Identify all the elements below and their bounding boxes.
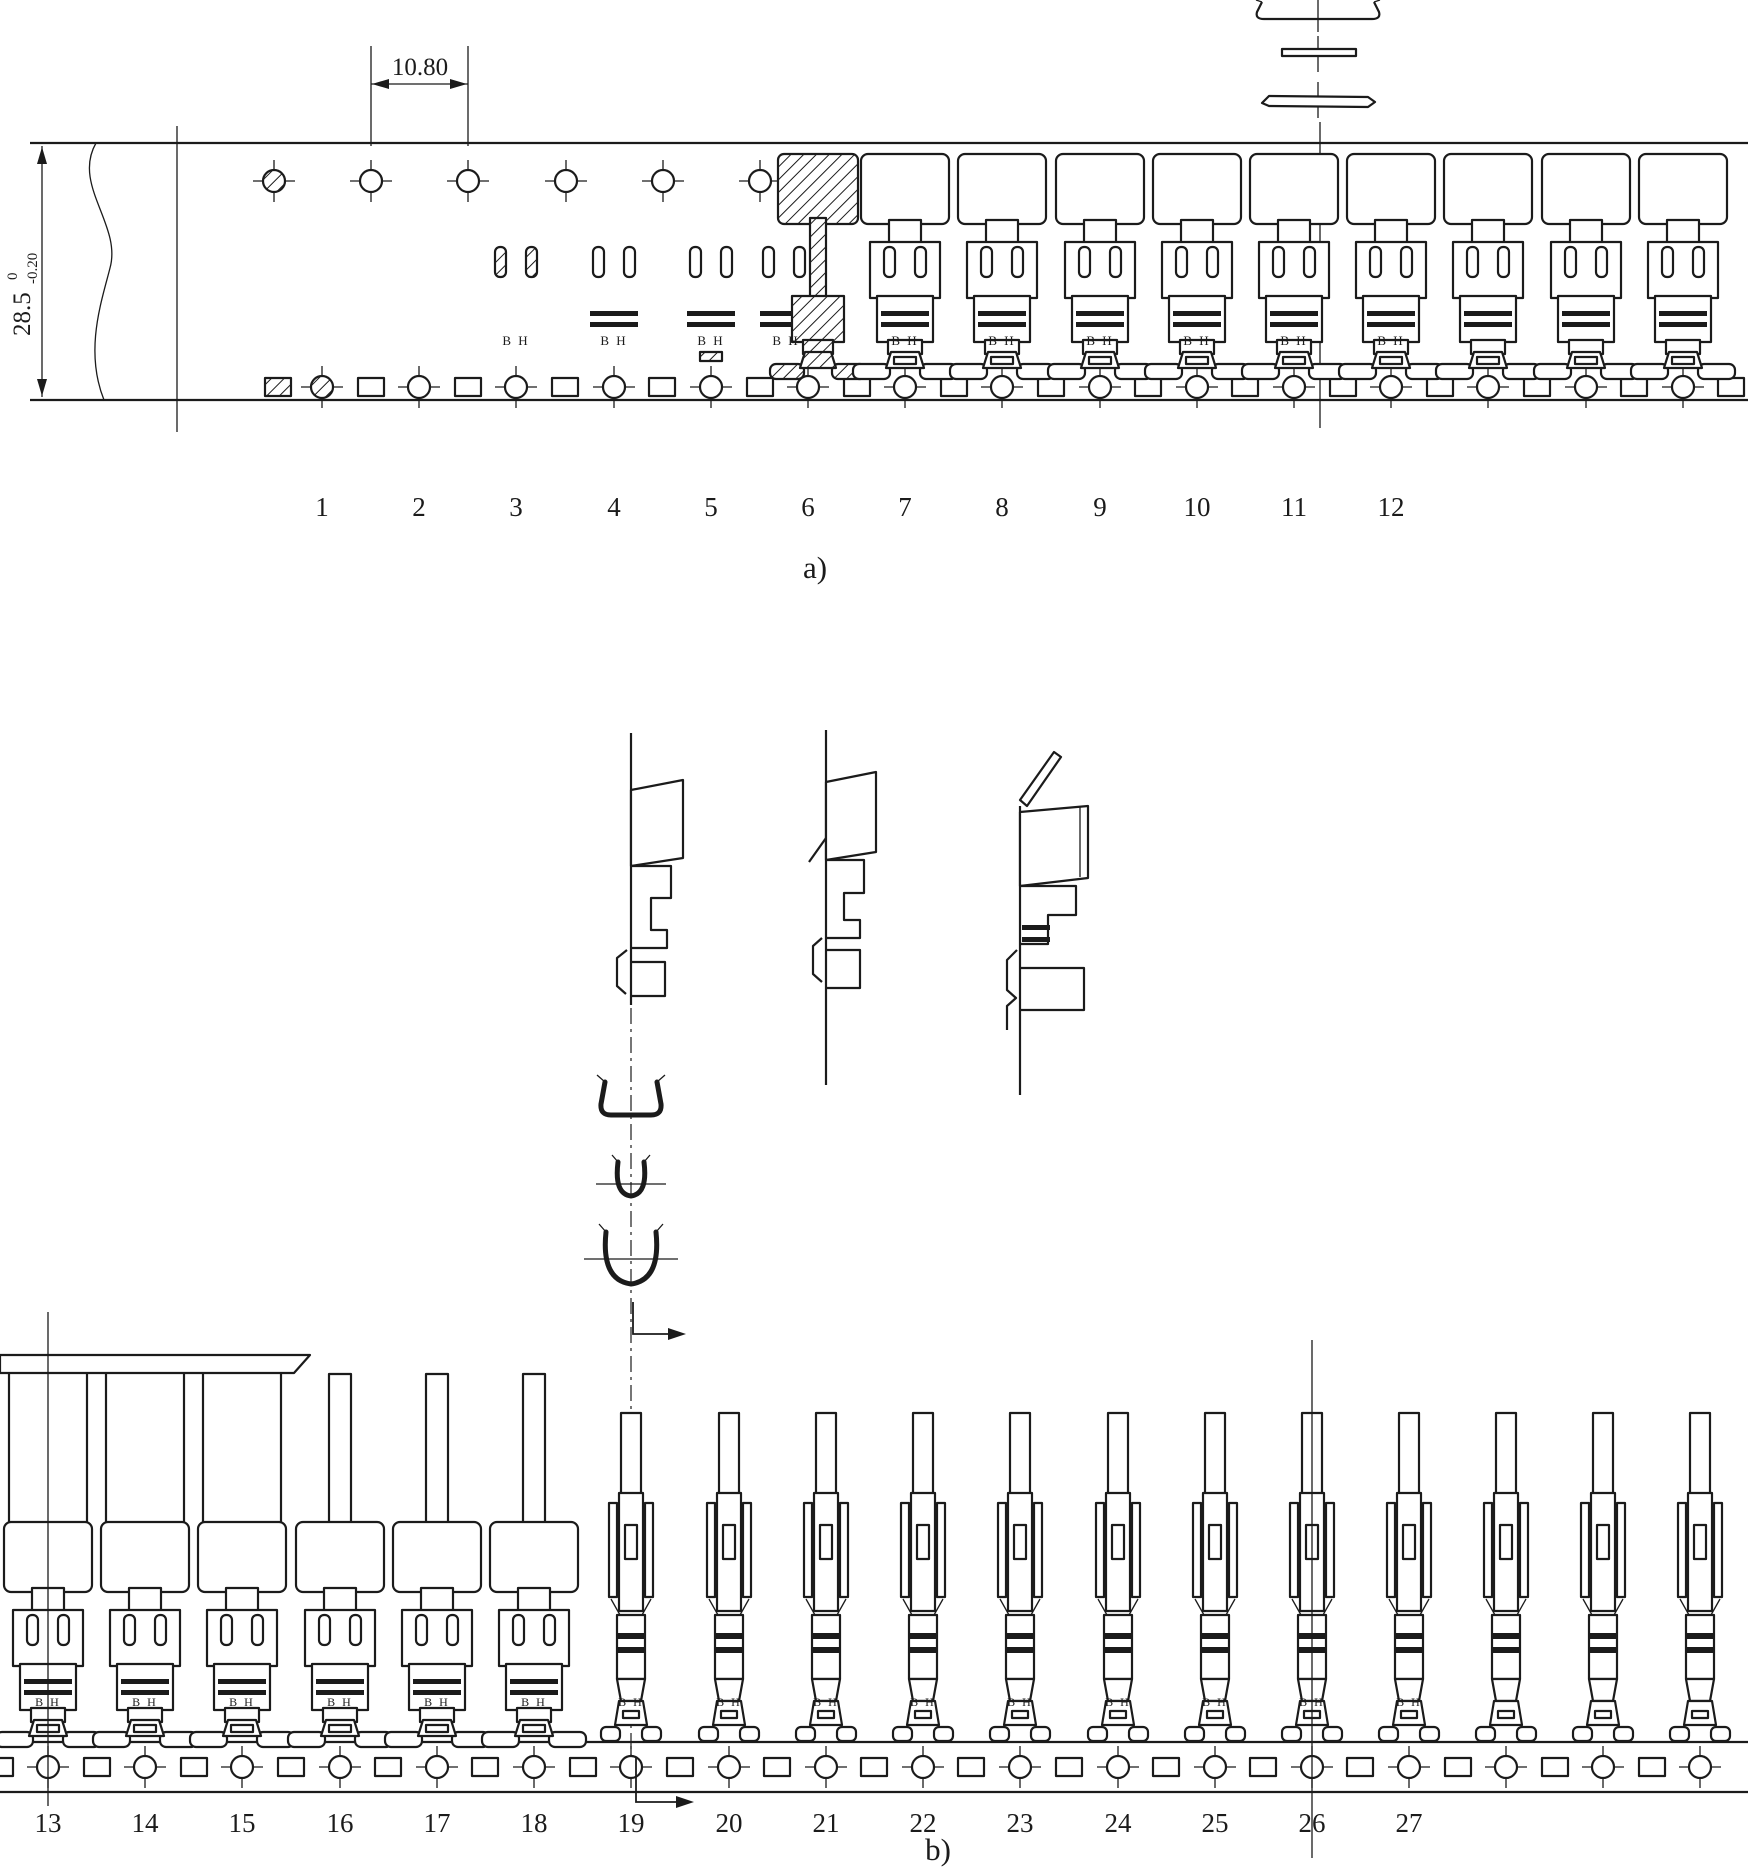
bh-mark-label: B H xyxy=(424,1695,450,1709)
pilot-hole xyxy=(1097,1746,1139,1788)
formed-terminal xyxy=(699,1413,759,1741)
station-number: 25 xyxy=(1202,1808,1229,1838)
station-number: 3 xyxy=(509,492,523,522)
pilot-hole xyxy=(805,1746,847,1788)
dimension-width: 28.5 0 -0.20 xyxy=(5,146,47,397)
station-number: 12 xyxy=(1378,492,1405,522)
bh-mark-label: B H xyxy=(35,1695,61,1709)
carrier-slot xyxy=(84,1758,110,1776)
carrier-slot-punched xyxy=(265,378,291,396)
cross-section-formed-channel xyxy=(1256,0,1380,32)
part-a-caption: a) xyxy=(803,550,827,585)
narrow-tab xyxy=(426,1374,448,1526)
bh-mark-label: B H xyxy=(716,1695,742,1709)
strip-layout-part-a: 10.80 28.5 0 -0.20 xyxy=(5,0,1748,585)
pilot-hole xyxy=(642,160,684,202)
station-number: 13 xyxy=(35,1808,62,1838)
station-numbers-a: 123456789101112 xyxy=(315,492,1404,522)
slot-pair xyxy=(690,247,732,277)
cross-section-wide-strip xyxy=(1262,82,1375,118)
pilot-hole xyxy=(1194,1746,1236,1788)
carrier-slot xyxy=(1038,378,1064,396)
formed-terminal xyxy=(990,1413,1050,1741)
bh-mark-label: B H xyxy=(813,1695,839,1709)
slot-pair xyxy=(763,247,805,277)
coin-marks xyxy=(590,311,638,327)
station-number: 24 xyxy=(1105,1808,1133,1838)
formed-terminal xyxy=(1670,1413,1730,1741)
bh-mark-label: B H xyxy=(1396,1695,1422,1709)
station-number: 16 xyxy=(327,1808,354,1838)
station-number: 27 xyxy=(1396,1808,1423,1838)
terminal-blanks-b xyxy=(0,1522,586,1747)
carrier-rail-and-tabs xyxy=(0,1355,545,1526)
strip-layout-drawing: 10.80 28.5 0 -0.20 xyxy=(0,0,1748,1868)
pilot-hole xyxy=(999,1746,1041,1788)
slot-pair xyxy=(593,247,635,277)
view-direction-arrow-upper xyxy=(633,1302,686,1340)
station-number: 10 xyxy=(1184,492,1211,522)
bh-mark-label: B H xyxy=(1086,333,1113,348)
carrier-slot xyxy=(941,378,967,396)
pilot-hole xyxy=(495,366,537,408)
width-dimension-label: 28.5 xyxy=(9,292,36,336)
pilot-hole xyxy=(545,160,587,202)
station-number: 1 xyxy=(315,492,329,522)
technical-drawing-canvas: 10.80 28.5 0 -0.20 xyxy=(0,0,1748,1868)
carrier-slot xyxy=(1524,378,1550,396)
station-number: 5 xyxy=(704,492,718,522)
bh-mark-label: B H xyxy=(1299,1695,1325,1709)
part-b-caption: b) xyxy=(925,1832,951,1867)
carrier-slot xyxy=(958,1758,984,1776)
slot-pair-punched xyxy=(495,247,537,277)
pierce-and-coin-marks xyxy=(495,247,808,361)
pilot-hole xyxy=(902,1746,944,1788)
pilot-hole xyxy=(739,160,781,202)
formed-terminal xyxy=(796,1413,856,1741)
pilot-hole xyxy=(593,366,635,408)
carrier-slot xyxy=(358,378,384,396)
bh-mark-label: B H xyxy=(891,333,918,348)
pilot-hole xyxy=(221,1746,263,1788)
pilot-hole xyxy=(610,1746,652,1788)
station-number: 2 xyxy=(412,492,426,522)
bh-mark-label: B H xyxy=(618,1695,644,1709)
station-numbers-b: 131415161718192021222324252627 xyxy=(35,1808,1423,1838)
pilot-hole xyxy=(124,1746,166,1788)
terminal-blank xyxy=(385,1522,489,1747)
width-tolerance-upper: 0 xyxy=(5,273,21,281)
pilot-hole xyxy=(1388,1746,1430,1788)
terminal-blank xyxy=(190,1522,294,1747)
station-number: 19 xyxy=(618,1808,645,1838)
terminal-blank xyxy=(0,1522,100,1747)
bh-mark-label: B H xyxy=(772,333,799,348)
carrier-slot xyxy=(649,378,675,396)
bh-mark-label: B H xyxy=(988,333,1015,348)
strip-layout-part-b: 131415161718192021222324252627 B HB HB H… xyxy=(0,730,1748,1867)
bh-mark-label: B H xyxy=(910,1695,936,1709)
station-number: 21 xyxy=(813,1808,840,1838)
carrier-slot xyxy=(472,1758,498,1776)
pilot-hole xyxy=(319,1746,361,1788)
dimension-pitch: 10.80 xyxy=(371,46,468,146)
carrier-slot xyxy=(1718,378,1744,396)
carrier-slot xyxy=(764,1758,790,1776)
terminal-blank xyxy=(288,1522,392,1747)
pilot-hole-punched xyxy=(253,160,295,202)
width-tolerance-lower: -0.20 xyxy=(25,253,41,284)
carrier-slot xyxy=(375,1758,401,1776)
formed-terminal xyxy=(1088,1413,1148,1741)
bh-mark-label: B H xyxy=(1377,333,1404,348)
station-number: 14 xyxy=(132,1808,160,1838)
bh-mark-label: B H xyxy=(1007,1695,1033,1709)
terminal-side-view-3 xyxy=(1007,752,1088,1095)
carrier-slot xyxy=(1427,378,1453,396)
station-number: 23 xyxy=(1007,1808,1034,1838)
mark-labels-b: B HB HB HB HB HB HB HB HB HB HB HB HB HB… xyxy=(35,1695,1422,1709)
pilot-hole xyxy=(398,366,440,408)
carrier-slot xyxy=(455,378,481,396)
terminal-blank xyxy=(0,1522,3,1747)
wide-tab xyxy=(106,1372,184,1526)
carrier-slot xyxy=(1153,1758,1179,1776)
carrier-slot xyxy=(747,378,773,396)
strip-break-line xyxy=(89,143,111,400)
pilot-hole xyxy=(690,366,732,408)
bh-mark-label: B H xyxy=(502,333,529,348)
bh-mark-label: B H xyxy=(697,333,724,348)
bh-mark-label: B H xyxy=(1183,333,1210,348)
carrier-slot xyxy=(1330,378,1356,396)
carrier-slot xyxy=(844,378,870,396)
pilot-hole xyxy=(1485,1746,1527,1788)
bh-mark-label: B H xyxy=(132,1695,158,1709)
formed-terminal xyxy=(601,1413,661,1741)
station-number: 18 xyxy=(521,1808,548,1838)
narrow-tab xyxy=(523,1374,545,1526)
terminal-side-view-2 xyxy=(809,730,876,1085)
carrier-slot xyxy=(0,1758,13,1776)
carrier-slot xyxy=(552,378,578,396)
bell-slot-punched xyxy=(700,352,722,361)
formed-terminal xyxy=(893,1413,953,1741)
station-number: 17 xyxy=(424,1808,451,1838)
station-number: 6 xyxy=(801,492,815,522)
pilot-hole xyxy=(350,160,392,202)
pilot-hole xyxy=(708,1746,750,1788)
carrier-slot xyxy=(181,1758,207,1776)
carrier-slot xyxy=(861,1758,887,1776)
station-number: 20 xyxy=(716,1808,743,1838)
formed-terminal xyxy=(1185,1413,1245,1741)
bh-mark-label: B H xyxy=(521,1695,547,1709)
station-number: 11 xyxy=(1281,492,1307,522)
carrier-slot xyxy=(1639,1758,1665,1776)
formed-terminals-b xyxy=(601,1413,1730,1741)
top-pilot-holes xyxy=(253,160,781,202)
pilot-hole xyxy=(447,160,489,202)
bh-mark-label: B H xyxy=(1280,333,1307,348)
pilot-hole xyxy=(1582,1746,1624,1788)
bh-mark-label: B H xyxy=(229,1695,255,1709)
terminal-blank xyxy=(93,1522,197,1747)
carrier-slot xyxy=(1056,1758,1082,1776)
terminal-blank xyxy=(1534,154,1638,379)
bh-mark-label: B H xyxy=(600,333,627,348)
bh-mark-label: B H xyxy=(327,1695,353,1709)
carrier-slot xyxy=(1445,1758,1471,1776)
carrier-slot xyxy=(667,1758,693,1776)
terminal-blank xyxy=(1631,154,1735,379)
station-number: 26 xyxy=(1299,1808,1326,1838)
carrier-strip-b xyxy=(0,1742,1748,1792)
carrier-slot xyxy=(1347,1758,1373,1776)
coin-marks xyxy=(687,311,735,327)
terminal-side-view-1 xyxy=(617,733,683,1005)
carrier-slot xyxy=(1232,378,1258,396)
terminal-blank xyxy=(1436,154,1540,379)
carrier-slot xyxy=(1621,378,1647,396)
pilot-hole-punched xyxy=(301,366,343,408)
carrier-slot xyxy=(278,1758,304,1776)
formed-terminal xyxy=(1379,1413,1439,1741)
carrier-slot xyxy=(1135,378,1161,396)
formed-terminal xyxy=(1476,1413,1536,1741)
carrier-slot xyxy=(570,1758,596,1776)
station-number: 7 xyxy=(898,492,912,522)
terminal-blank xyxy=(482,1522,586,1747)
top-carrier-rail xyxy=(0,1355,310,1373)
carrier-slot xyxy=(1542,1758,1568,1776)
pilot-hole xyxy=(1679,1746,1721,1788)
bh-mark-label: B H xyxy=(1105,1695,1131,1709)
narrow-tab xyxy=(329,1374,351,1526)
station-number: 9 xyxy=(1093,492,1107,522)
wide-tab xyxy=(203,1372,281,1526)
pilot-hole xyxy=(513,1746,555,1788)
station-number: 15 xyxy=(229,1808,256,1838)
formed-terminal xyxy=(1573,1413,1633,1741)
bh-mark-label: B H xyxy=(1202,1695,1228,1709)
pilot-hole xyxy=(416,1746,458,1788)
station-number: 4 xyxy=(607,492,621,522)
strip-cross-sections xyxy=(1256,0,1380,118)
pitch-dimension-label: 10.80 xyxy=(392,54,448,81)
station-number: 8 xyxy=(995,492,1009,522)
cross-section-flat-strip xyxy=(1282,36,1356,72)
carrier-slot xyxy=(1250,1758,1276,1776)
